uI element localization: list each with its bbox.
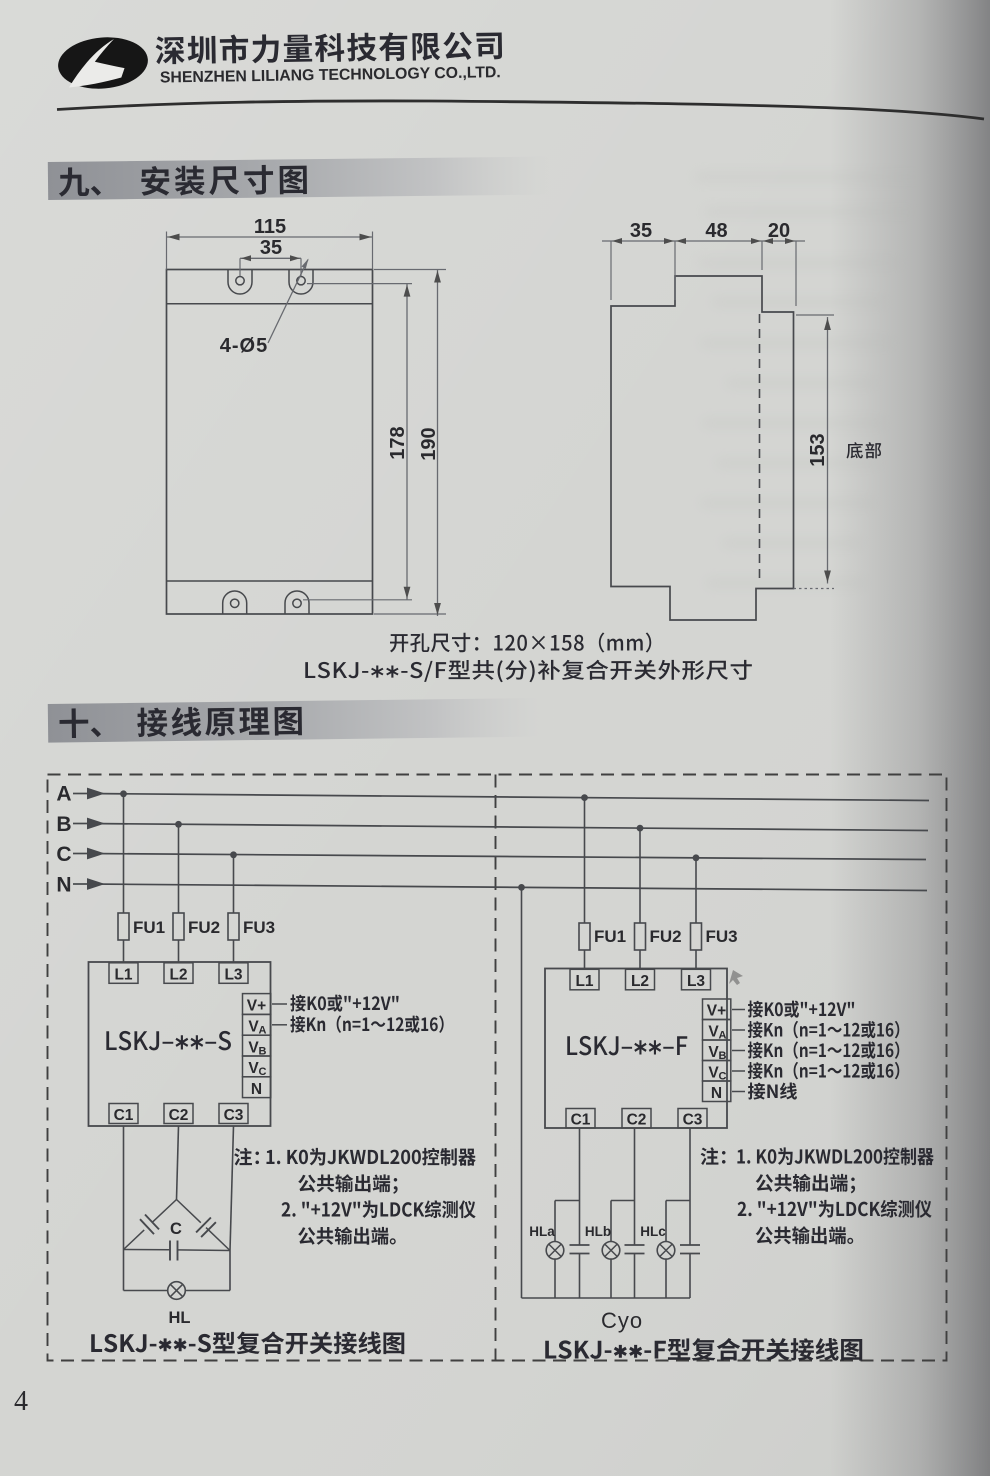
svg-text:C1: C1 — [114, 1107, 134, 1124]
svg-text:C: C — [56, 843, 71, 866]
svg-text:20: 20 — [768, 220, 790, 242]
svg-text:4: 4 — [14, 1386, 28, 1417]
svg-text:C2: C2 — [627, 1111, 647, 1128]
svg-text:178: 178 — [387, 426, 409, 459]
svg-text:115: 115 — [254, 216, 286, 238]
svg-text:N: N — [711, 1085, 722, 1102]
svg-text:L1: L1 — [575, 973, 593, 990]
svg-text:C: C — [170, 1220, 182, 1238]
svg-text:C1: C1 — [571, 1111, 591, 1128]
svg-text:FU2: FU2 — [650, 927, 682, 946]
svg-text:190: 190 — [418, 427, 440, 460]
svg-text:HLa: HLa — [529, 1224, 555, 1239]
svg-text:35: 35 — [630, 220, 652, 242]
svg-text:HLb: HLb — [585, 1224, 611, 1239]
svg-text:153: 153 — [807, 433, 829, 466]
svg-text:35: 35 — [260, 237, 282, 259]
svg-text:L2: L2 — [631, 973, 649, 990]
svg-text:L2: L2 — [169, 967, 187, 984]
svg-text:C2: C2 — [169, 1107, 189, 1124]
svg-text:C3: C3 — [224, 1107, 244, 1124]
svg-text:B: B — [56, 813, 71, 836]
svg-text:FU3: FU3 — [243, 918, 275, 937]
svg-text:Cyo: Cyo — [601, 1308, 643, 1333]
svg-text:FU1: FU1 — [594, 927, 626, 946]
svg-text:FU1: FU1 — [133, 918, 165, 937]
svg-text:C3: C3 — [683, 1111, 703, 1128]
svg-text:FU3: FU3 — [706, 927, 738, 946]
svg-text:N: N — [251, 1081, 262, 1098]
svg-text:HLc: HLc — [640, 1224, 666, 1239]
svg-text:48: 48 — [705, 220, 727, 242]
svg-text:N: N — [56, 874, 71, 897]
svg-text:L3: L3 — [224, 967, 242, 984]
svg-text:4-Ø5: 4-Ø5 — [220, 335, 268, 357]
svg-text:HL: HL — [169, 1309, 191, 1327]
svg-text:L3: L3 — [687, 973, 705, 990]
svg-text:A: A — [56, 783, 71, 806]
svg-text:FU2: FU2 — [188, 918, 220, 937]
svg-text:V+: V+ — [707, 1003, 726, 1020]
svg-text:V+: V+ — [247, 998, 266, 1015]
svg-text:L1: L1 — [114, 967, 132, 984]
